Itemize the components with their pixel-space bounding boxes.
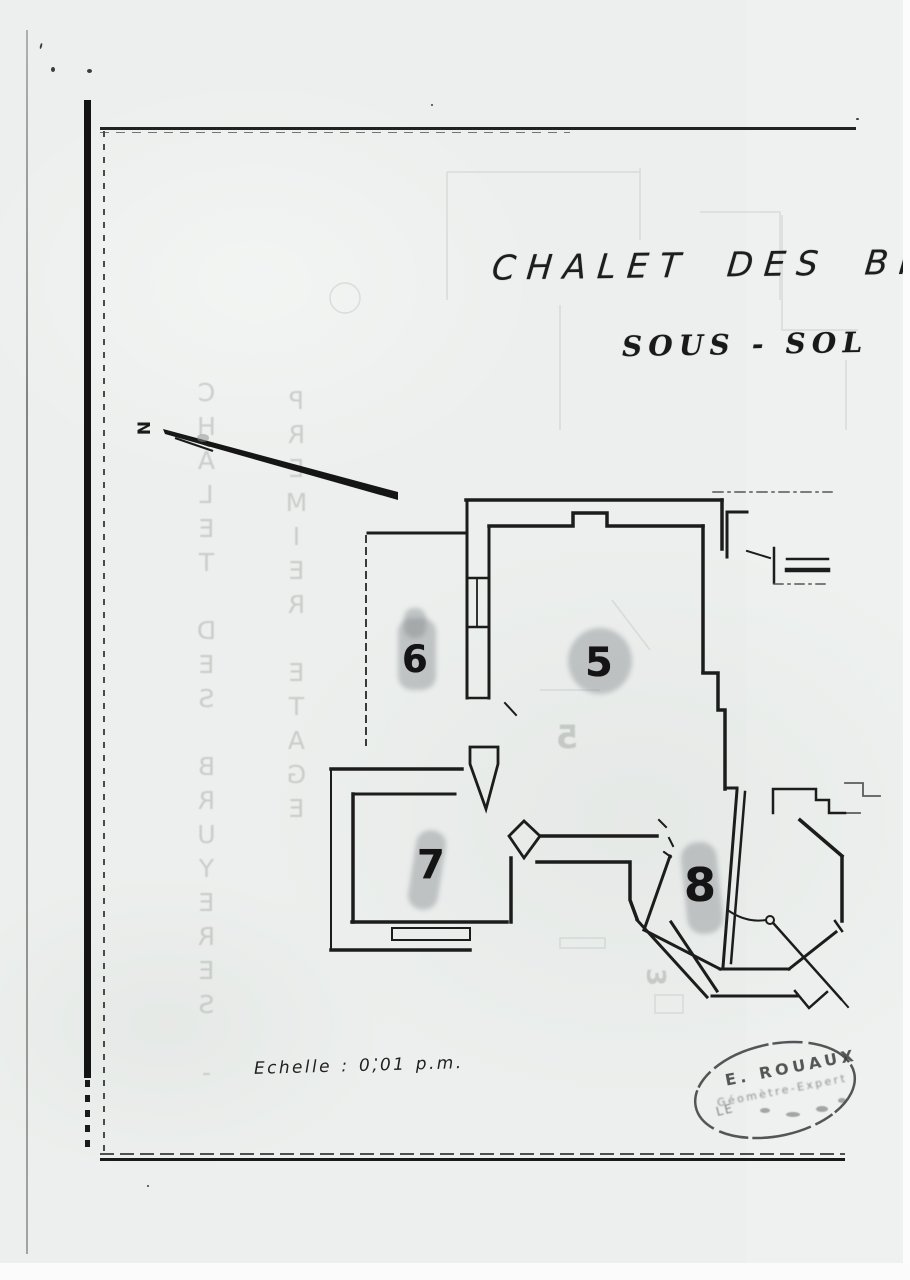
scanned-floor-plan-sheet: CHALET DES BRUYERES - PREMIER ETAGE 5 3 bbox=[0, 0, 910, 1280]
stamp-smudge bbox=[786, 1112, 800, 1117]
plan-walls bbox=[331, 492, 880, 1008]
scan-speck bbox=[375, 1058, 377, 1061]
stamp-smudge bbox=[816, 1106, 828, 1112]
north-label: N bbox=[135, 421, 155, 435]
scan-edge-line bbox=[26, 30, 28, 1254]
sheet-border-top-echo bbox=[100, 132, 570, 133]
plan-subtitle: SOUS - SOL bbox=[622, 326, 869, 363]
sheet-border-bottom bbox=[100, 1158, 845, 1161]
room-number-5: 5 bbox=[585, 640, 613, 686]
room-number-8: 8 bbox=[684, 858, 716, 912]
stamp-smudge bbox=[760, 1108, 770, 1113]
plan-title: CHALET DES BRU bbox=[490, 243, 874, 288]
scan-speck bbox=[431, 104, 433, 106]
north-arrow bbox=[163, 429, 398, 500]
scan-speck bbox=[147, 1185, 149, 1187]
sheet-border-bottom-dashed bbox=[100, 1153, 845, 1155]
sheet-border-left bbox=[103, 131, 105, 1159]
room-number-6: 6 bbox=[402, 638, 428, 681]
stamp-smudge bbox=[838, 1098, 846, 1103]
smudge-room-6-dark bbox=[404, 608, 426, 638]
paper-edge-bottom bbox=[0, 1263, 910, 1280]
scan-speck bbox=[856, 118, 859, 120]
paper-edge-right bbox=[903, 0, 910, 1280]
scan-black-bar-dashes bbox=[85, 1080, 90, 1148]
sheet-border-top bbox=[100, 127, 856, 130]
room-number-7: 7 bbox=[417, 842, 445, 888]
scan-speck bbox=[87, 69, 92, 73]
scan-speck bbox=[51, 67, 55, 72]
scan-black-bar bbox=[84, 100, 91, 1078]
